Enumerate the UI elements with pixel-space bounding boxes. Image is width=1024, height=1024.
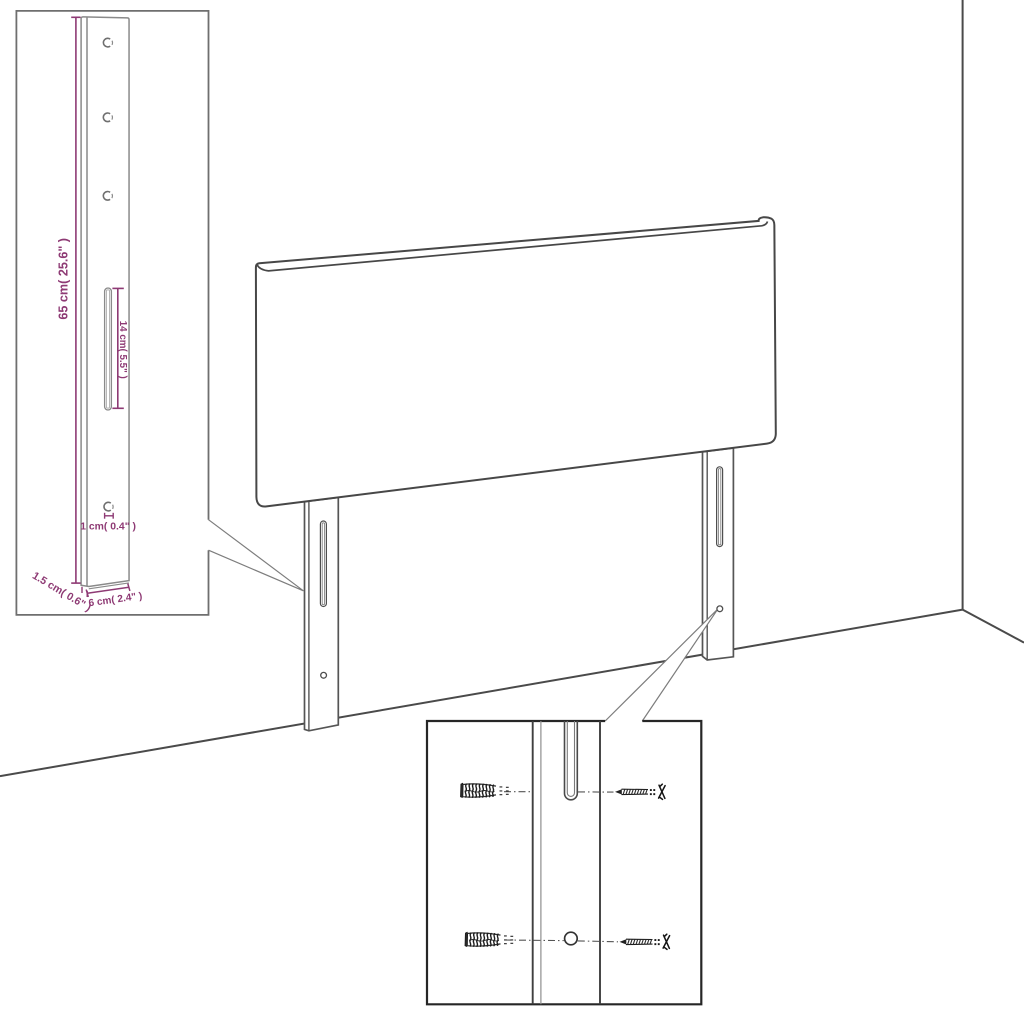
svg-text:1 cm( 0.4" ): 1 cm( 0.4" ) [80,522,136,533]
svg-text:65 cm( 25.6" ): 65 cm( 25.6" ) [56,238,70,320]
svg-text:14 cm( 5.5" ): 14 cm( 5.5" ) [117,321,128,379]
